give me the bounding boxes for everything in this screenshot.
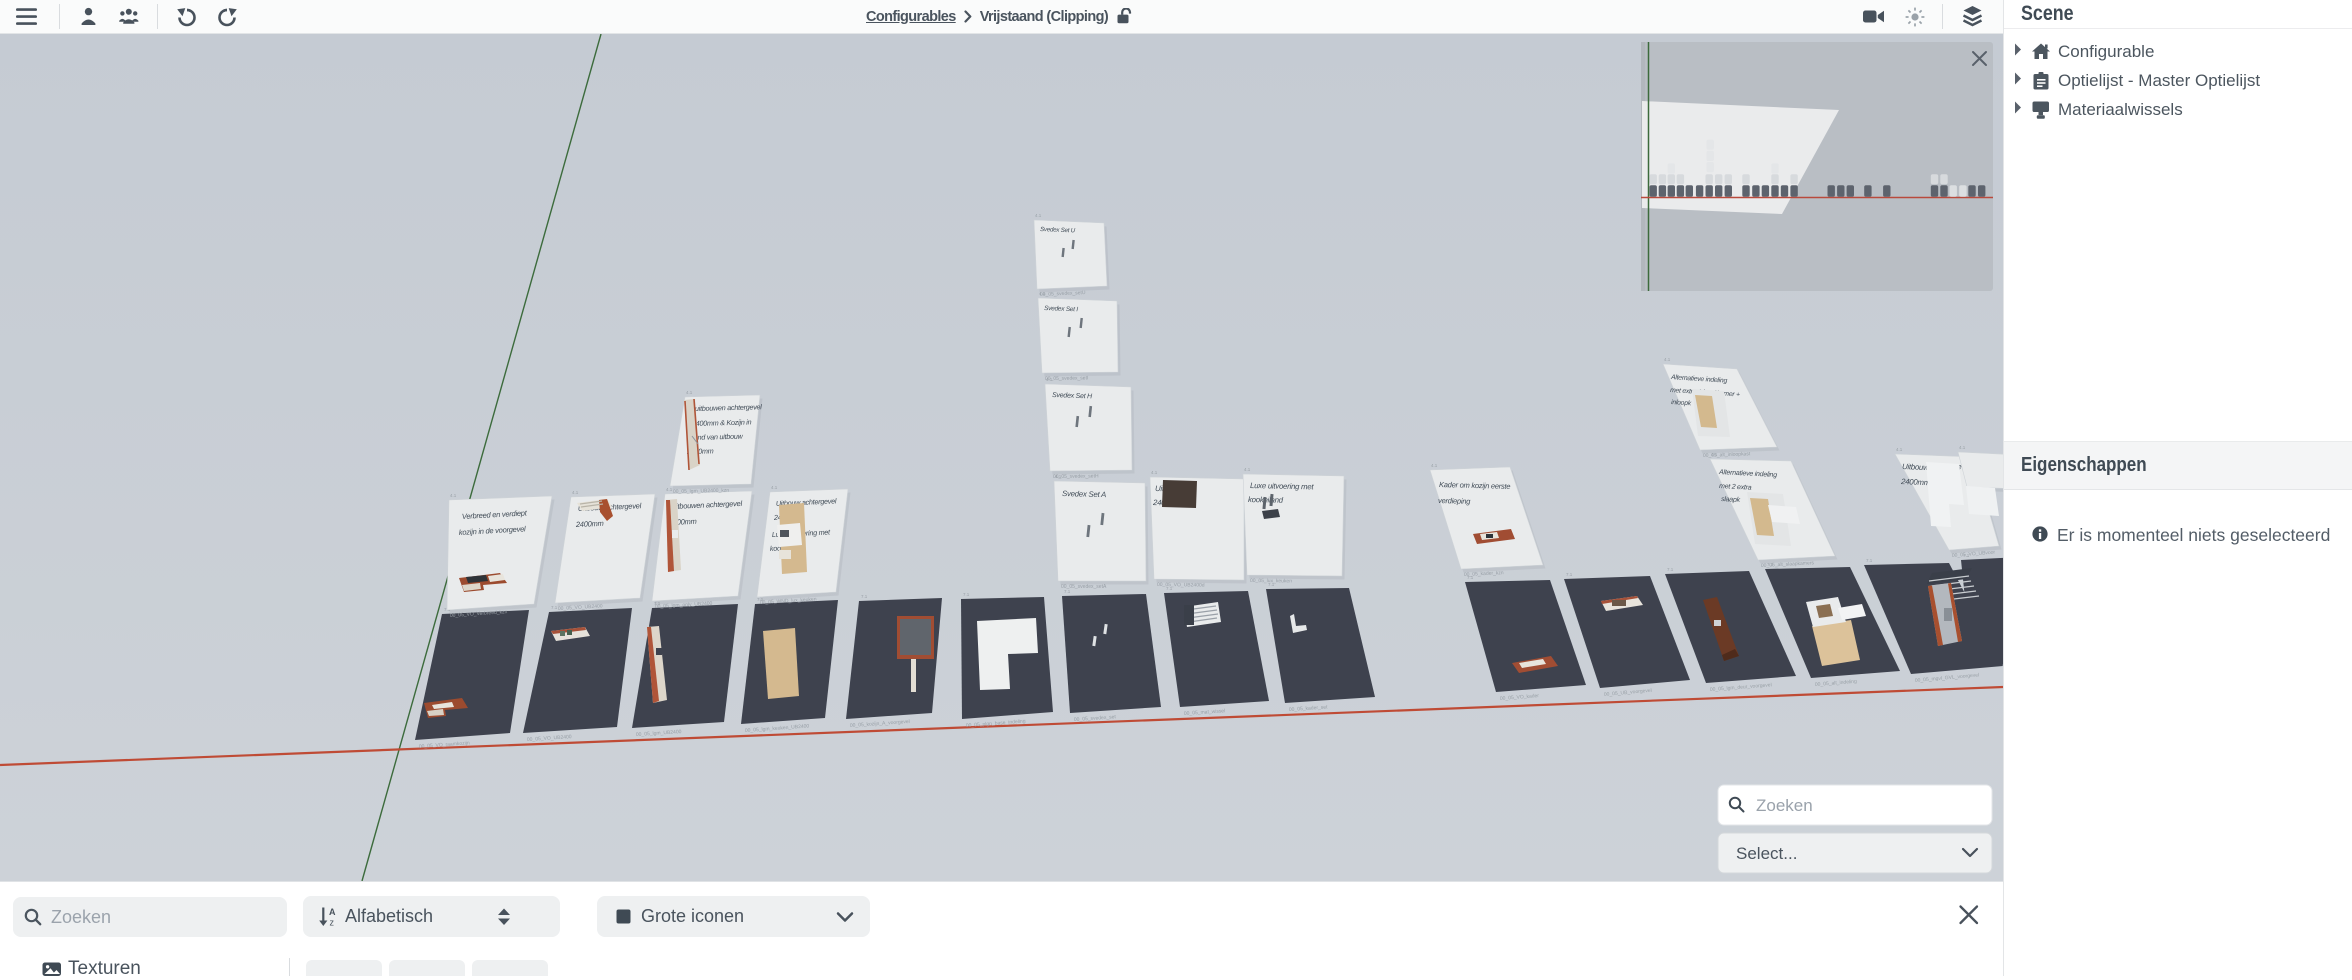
svg-text:slaapk: slaapk — [1721, 496, 1741, 504]
svg-text:uitbouwen achtergevel: uitbouwen achtergevel — [695, 402, 763, 413]
svg-text:00_05_VO_UB2400d: 00_05_VO_UB2400d — [1157, 582, 1205, 588]
svg-text:A: A — [329, 907, 336, 917]
svg-text:4.1: 4.1 — [1244, 467, 1251, 472]
svg-text:7.1: 7.1 — [1866, 558, 1873, 563]
svg-text:2400mm: 2400mm — [1900, 477, 1931, 487]
svg-text:4.1: 4.1 — [572, 490, 579, 495]
svg-text:Materiaalwissels: Materiaalwissels — [2058, 100, 2183, 119]
svg-text:Luxe uitvoering met: Luxe uitvoering met — [1250, 481, 1315, 491]
svg-text:7.1: 7.1 — [1566, 572, 1573, 577]
svg-text:4.1: 4.1 — [1039, 291, 1046, 296]
svg-text:4.1: 4.1 — [666, 487, 673, 492]
svg-text:2400mm: 2400mm — [575, 519, 604, 529]
svg-text:4.1: 4.1 — [1896, 447, 1903, 452]
svg-text:Svedex Set I: Svedex Set I — [1044, 305, 1079, 313]
svg-text:4.1: 4.1 — [450, 493, 457, 498]
svg-text:7.1: 7.1 — [963, 592, 970, 597]
svg-text:Select...: Select... — [1736, 844, 1797, 863]
svg-text:4.1: 4.1 — [1959, 445, 1966, 450]
svg-text:7.1: 7.1 — [551, 605, 558, 610]
svg-text:7.1: 7.1 — [1667, 567, 1674, 572]
svg-text:Zoeken: Zoeken — [1756, 796, 1813, 815]
svg-text:00_05_svedex_setA: 00_05_svedex_setA — [1061, 584, 1107, 590]
svg-text:verdieping: verdieping — [1438, 496, 1471, 506]
svg-text:4.1: 4.1 — [686, 390, 693, 395]
svg-text:7.1: 7.1 — [861, 594, 868, 599]
svg-text:4.1: 4.1 — [771, 485, 778, 490]
svg-text:Uitbouw: Uitbouw — [1902, 462, 1930, 472]
svg-text:4.1: 4.1 — [1431, 463, 1438, 468]
svg-text:4.1: 4.1 — [1664, 357, 1671, 362]
svg-text:Optielijst - Master Optielijst: Optielijst - Master Optielijst — [2058, 71, 2260, 90]
svg-text:Svedex Set U: Svedex Set U — [1040, 226, 1076, 234]
svg-text:4.1: 4.1 — [1711, 452, 1718, 457]
svg-text:z: z — [330, 918, 335, 928]
svg-text:4.1: 4.1 — [1046, 377, 1053, 382]
svg-text:4.1: 4.1 — [1035, 213, 1042, 218]
svg-text:2400mm & Kozijn in: 2400mm & Kozijn in — [691, 417, 752, 428]
svg-text:4.1: 4.1 — [1055, 474, 1062, 479]
svg-text:inloopk: inloopk — [1671, 399, 1692, 407]
svg-text:Kader om kozijn eerste: Kader om kozijn eerste — [1439, 480, 1510, 491]
svg-text:00_05_lux_keuken: 00_05_lux_keuken — [1250, 578, 1292, 584]
svg-text:Svedex Set A: Svedex Set A — [1062, 489, 1106, 499]
svg-text:Svedex Set H: Svedex Set H — [1052, 392, 1093, 400]
svg-text:Configurable: Configurable — [2058, 42, 2154, 61]
svg-text:4.1: 4.1 — [1151, 470, 1158, 475]
